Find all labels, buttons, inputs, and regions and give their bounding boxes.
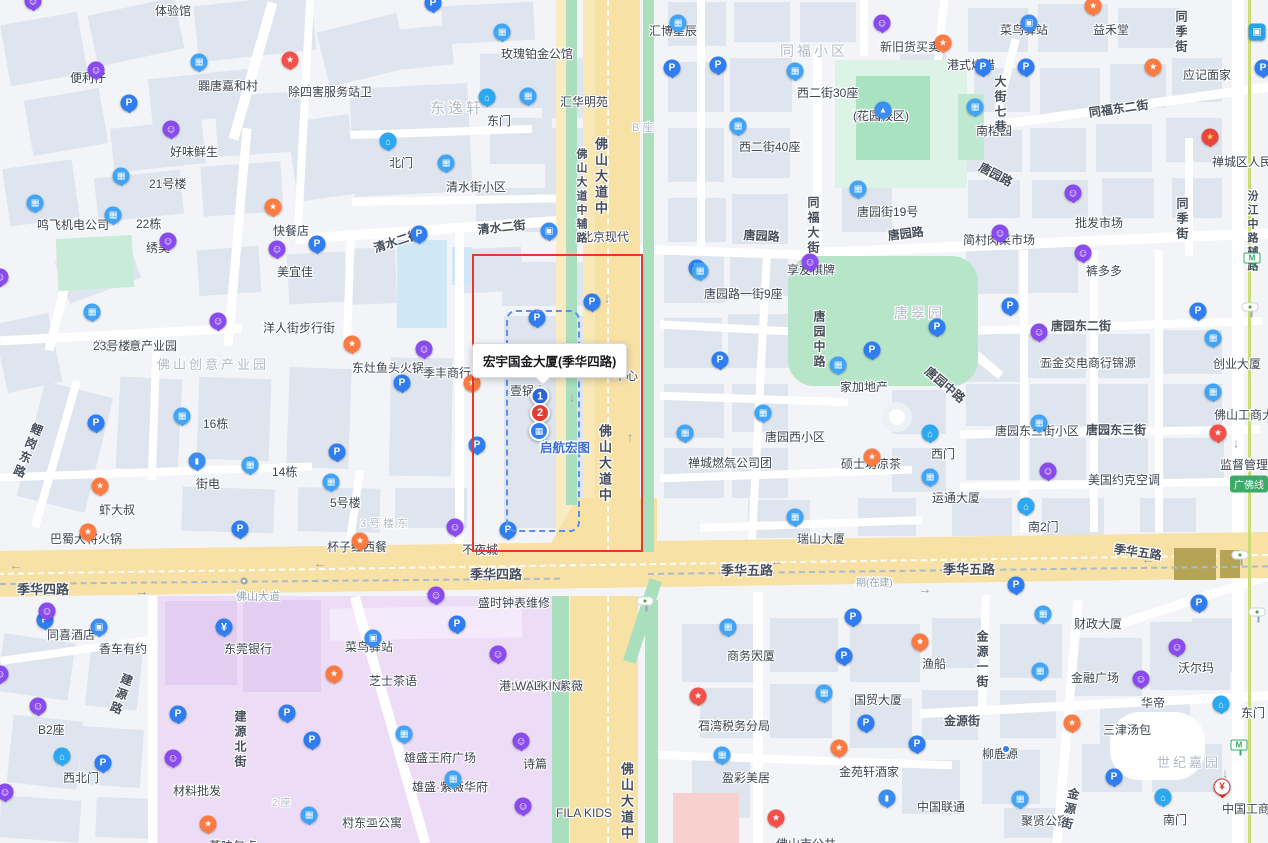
road-white: [753, 592, 763, 843]
shop-icon[interactable]: ☺: [874, 15, 891, 32]
traffic-light-icon: [637, 597, 654, 606]
restaurant-icon[interactable]: ★: [200, 816, 217, 833]
gate-icon[interactable]: ⌂: [479, 89, 496, 106]
shop-icon[interactable]: ☺: [163, 121, 180, 138]
building-icon[interactable]: ▦: [1205, 330, 1222, 347]
shop-icon[interactable]: ☺: [992, 225, 1009, 242]
government-icon[interactable]: ★: [1210, 425, 1227, 442]
restaurant-icon[interactable]: ★: [831, 740, 848, 757]
building-icon[interactable]: ▦: [1012, 791, 1029, 808]
place-dot-icon[interactable]: [1001, 744, 1011, 754]
map-canvas[interactable]: 宏宇国金大厦(季华四路) 1 2 ▦ 宏宇国金 启航宏图 ←→←→←→←↓↓↑↓…: [0, 0, 1268, 843]
building-block: [1030, 128, 1086, 172]
building-icon[interactable]: ▦: [396, 726, 413, 743]
shop-icon[interactable]: ☺: [1169, 639, 1186, 656]
building-block: [1072, 638, 1142, 696]
building-block: [1000, 690, 1056, 738]
zone-block: [397, 240, 447, 328]
gate-icon[interactable]: ⌂: [1155, 789, 1172, 806]
building-icon[interactable]: ▦: [191, 54, 208, 71]
shop-icon[interactable]: ☺: [1133, 671, 1150, 688]
road-white: [148, 596, 157, 843]
building-icon[interactable]: ▦: [816, 685, 833, 702]
shop-icon[interactable]: ☺: [269, 241, 286, 258]
shop-icon[interactable]: ☺: [513, 733, 530, 750]
building-icon[interactable]: ▦: [1205, 384, 1222, 401]
parking-icon[interactable]: P: [836, 648, 853, 665]
parking-icon[interactable]: P: [929, 319, 946, 336]
road-direction-arrow: ↓: [1233, 436, 1240, 451]
parking-icon[interactable]: P: [309, 236, 326, 253]
shop-icon[interactable]: ☺: [165, 750, 182, 767]
building-icon[interactable]: ▦: [113, 168, 130, 185]
device-icon[interactable]: ▮: [189, 453, 206, 470]
building-icon[interactable]: ▦: [301, 807, 318, 824]
restaurant-icon[interactable]: ★: [1064, 715, 1081, 732]
main-poi-caption-line2: 启航宏图: [540, 441, 590, 456]
restaurant-icon[interactable]: ★: [92, 478, 109, 495]
building-block: [24, 88, 109, 156]
shop-icon[interactable]: ☺: [1075, 245, 1092, 262]
parking-icon[interactable]: P: [232, 521, 249, 538]
road-direction-arrow: →: [919, 582, 932, 597]
building-icon[interactable]: ▦: [692, 263, 709, 280]
road-white: [455, 230, 464, 554]
building-icon[interactable]: ▦: [27, 195, 44, 212]
road-white: [1020, 250, 1028, 532]
building-block: [770, 618, 838, 672]
parking-icon[interactable]: P: [95, 755, 112, 772]
traffic-light-icon: [1232, 551, 1249, 560]
parking-icon[interactable]: P: [304, 732, 321, 749]
building-block: [1030, 438, 1086, 480]
building-icon[interactable]: ▦: [1032, 663, 1049, 680]
government-icon[interactable]: ★: [768, 810, 785, 827]
restaurant-icon[interactable]: ★: [935, 35, 952, 52]
building-block: [1140, 498, 1196, 532]
building-icon[interactable]: ▦: [670, 15, 687, 32]
selection-box: [472, 254, 643, 552]
building-icon[interactable]: ▦: [105, 207, 122, 224]
shop-icon[interactable]: ☺: [39, 603, 56, 620]
parking-icon[interactable]: P: [864, 342, 881, 359]
gate-icon[interactable]: ⌂: [1018, 498, 1035, 515]
building-icon[interactable]: ▦: [174, 408, 191, 425]
building-icon[interactable]: ▦: [755, 405, 772, 422]
bank-icon[interactable]: ¥: [216, 619, 233, 636]
shop-icon[interactable]: ☺: [25, 0, 42, 10]
traffic-light-icon: [1249, 608, 1266, 617]
parking-icon[interactable]: P: [394, 375, 411, 392]
building-icon[interactable]: ▦: [730, 118, 747, 135]
road-direction-arrow: ←: [10, 558, 23, 573]
metro-entrance-icon[interactable]: M: [1244, 253, 1261, 264]
parking-icon[interactable]: P: [1018, 59, 1035, 76]
road-white: [697, 0, 705, 252]
restaurant-icon[interactable]: ★: [352, 533, 369, 550]
building-block: [181, 486, 274, 533]
parking-icon[interactable]: P: [1106, 769, 1123, 786]
shop-icon[interactable]: ☺: [416, 341, 433, 358]
building-icon[interactable]: ▦: [323, 474, 340, 491]
building-block: [0, 633, 76, 700]
building-icon[interactable]: ▦: [445, 771, 462, 788]
court-icon[interactable]: ★: [1202, 129, 1219, 146]
poi-tooltip[interactable]: 宏宇国金大厦(季华四路): [472, 343, 627, 378]
road-white: [224, 128, 252, 346]
shop-icon[interactable]: ☺: [160, 233, 177, 250]
government-icon[interactable]: ★: [690, 688, 707, 705]
parking-icon[interactable]: P: [975, 59, 992, 76]
shop-icon[interactable]: ☺: [802, 254, 819, 271]
restaurant-icon[interactable]: ★: [344, 336, 361, 353]
shop-icon[interactable]: ☺: [30, 698, 47, 715]
parking-icon[interactable]: P: [425, 0, 442, 12]
shop-icon[interactable]: ☺: [490, 646, 507, 663]
building-block: [2, 159, 79, 226]
parking-icon[interactable]: P: [1008, 577, 1025, 594]
building-block: [349, 247, 397, 305]
parking-icon[interactable]: P: [121, 95, 138, 112]
shop-icon[interactable]: ☺: [0, 269, 9, 286]
building-icon[interactable]: ▦: [830, 357, 847, 374]
gate-icon[interactable]: ⌂: [1213, 696, 1230, 713]
zone-block: [673, 793, 739, 843]
traffic-light-icon: [1242, 303, 1259, 312]
restaurant-icon[interactable]: ★: [265, 199, 282, 216]
shop-icon[interactable]: ☺: [1031, 324, 1048, 341]
road-direction-arrow: ←: [314, 556, 327, 571]
building-block: [730, 58, 792, 112]
building-icon[interactable]: ▦: [677, 425, 694, 442]
shop-icon[interactable]: ☺: [1065, 185, 1082, 202]
building-icon[interactable]: ▦: [787, 509, 804, 526]
building-block: [441, 2, 535, 45]
parking-icon[interactable]: P: [845, 609, 862, 626]
metro-line-badge: 广佛线: [1230, 476, 1268, 493]
building-icon[interactable]: ▦: [1031, 415, 1048, 432]
parking-icon[interactable]: P: [279, 705, 296, 722]
parking-icon[interactable]: P: [1255, 60, 1268, 77]
metro-station-dot: [241, 578, 248, 585]
green-area: [643, 0, 654, 552]
icbc-bank-icon[interactable]: ¥: [1214, 779, 1231, 796]
shop-icon[interactable]: ☺: [88, 62, 105, 79]
parking-icon[interactable]: P: [710, 57, 727, 74]
green-area: [56, 235, 135, 291]
green-area: [645, 600, 658, 843]
building-block: [0, 795, 81, 842]
restaurant-icon[interactable]: ★: [912, 634, 929, 651]
building-block: [734, 2, 790, 42]
bus-stop-icon[interactable]: ▣: [1249, 24, 1266, 41]
building-icon[interactable]: ▦: [494, 24, 511, 41]
road-white: [1155, 250, 1163, 532]
building-icon[interactable]: ▦: [922, 469, 939, 486]
vehicle-icon[interactable]: ▣: [1021, 15, 1038, 32]
building-icon[interactable]: ▦: [1035, 606, 1052, 623]
shop-icon[interactable]: ☺: [515, 798, 532, 815]
road-white: [860, 0, 868, 56]
gate-icon[interactable]: ⌂: [54, 748, 71, 765]
parking-icon[interactable]: P: [858, 715, 875, 732]
building-block: [668, 128, 724, 182]
parking-icon[interactable]: P: [329, 444, 346, 461]
building-icon[interactable]: ▦: [438, 155, 455, 172]
marker-2[interactable]: 2: [530, 403, 550, 423]
device-icon[interactable]: ▮: [879, 790, 896, 807]
building-block: [1096, 124, 1152, 172]
building-icon[interactable]: ▦: [84, 304, 101, 321]
metro-entrance-icon[interactable]: M: [1231, 740, 1248, 751]
gate-icon[interactable]: ⌂: [380, 133, 397, 150]
parking-icon[interactable]: P: [170, 706, 187, 723]
building-icon[interactable]: ▦: [520, 88, 537, 105]
restaurant-icon[interactable]: ★: [1145, 59, 1162, 76]
shop-icon[interactable]: ☺: [428, 587, 445, 604]
building-block: [1022, 245, 1078, 293]
parking-icon[interactable]: P: [664, 60, 681, 77]
building-icon[interactable]: ▦: [242, 457, 259, 474]
building-block: [1096, 384, 1148, 426]
building-block: [800, 2, 856, 42]
restaurant-icon[interactable]: ★: [864, 449, 881, 466]
road-white: [1090, 250, 1098, 532]
roundabout: [882, 402, 912, 432]
building-block: [1102, 178, 1154, 218]
restaurant-icon[interactable]: ★: [326, 666, 343, 683]
parking-icon[interactable]: P: [411, 226, 428, 243]
parking-icon[interactable]: P: [1191, 595, 1208, 612]
building-icon[interactable]: ▦: [967, 99, 984, 116]
road-direction-arrow: →: [136, 584, 149, 599]
building-block: [966, 438, 1022, 480]
building-icon[interactable]: ▦: [850, 181, 867, 198]
shop-icon[interactable]: ☺: [1040, 463, 1057, 480]
vehicle-icon[interactable]: ▣: [541, 223, 558, 240]
restaurant-icon[interactable]: ★: [80, 524, 97, 541]
building-icon[interactable]: ▦: [787, 63, 804, 80]
shop-icon[interactable]: ☺: [210, 313, 227, 330]
shop-icon[interactable]: ☺: [447, 519, 464, 536]
gate-icon[interactable]: ⌂: [922, 425, 939, 442]
building-icon[interactable]: ▦: [714, 747, 731, 764]
parking-icon[interactable]: P: [1190, 303, 1207, 320]
school-icon[interactable]: ▲: [875, 102, 892, 119]
overpass-block: [1174, 548, 1216, 580]
parking-icon[interactable]: P: [1002, 298, 1019, 315]
building-block: [1032, 180, 1088, 218]
building-block: [968, 180, 1020, 218]
parking-icon[interactable]: P: [449, 616, 466, 633]
parking-icon[interactable]: P: [88, 415, 105, 432]
main-poi-icon[interactable]: ▦: [529, 421, 549, 441]
vehicle-icon[interactable]: ▣: [365, 630, 382, 647]
building-block: [850, 624, 920, 682]
building-block: [966, 384, 1022, 426]
vehicle-icon[interactable]: ▣: [91, 619, 108, 636]
government-icon[interactable]: ★: [282, 52, 299, 69]
parking-icon[interactable]: P: [909, 736, 926, 753]
parking-icon[interactable]: P: [712, 352, 729, 369]
building-icon[interactable]: ▦: [720, 619, 737, 636]
